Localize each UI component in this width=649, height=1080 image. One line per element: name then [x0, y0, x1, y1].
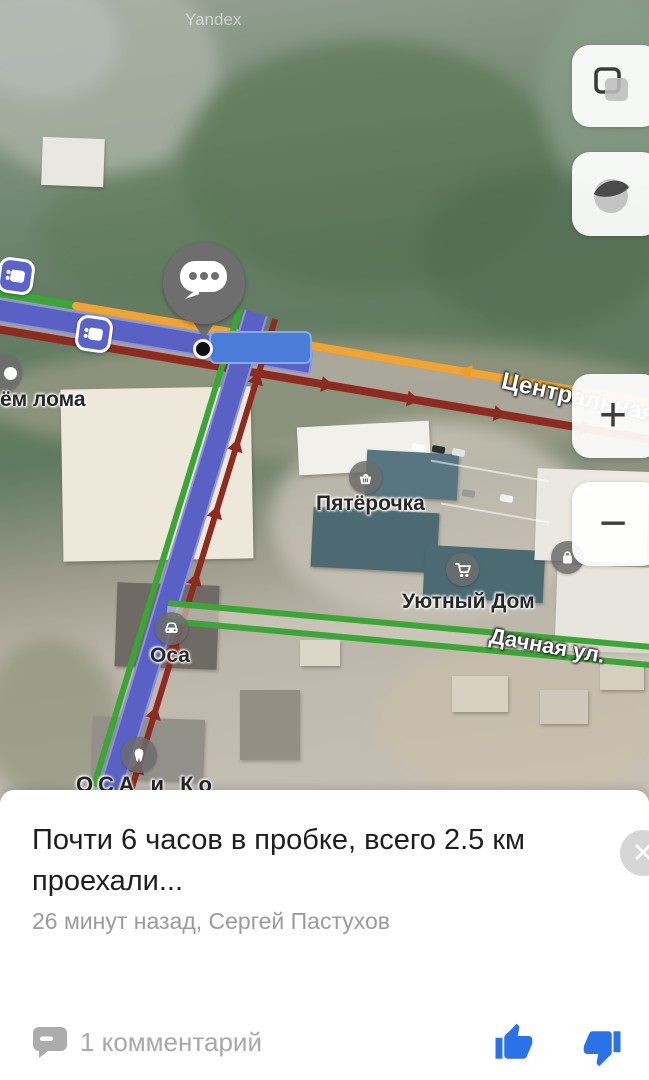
- poi-pyaterochka[interactable]: [349, 461, 382, 494]
- comments-link[interactable]: 1 комментарий: [32, 1026, 262, 1058]
- dot-icon: [4, 367, 17, 380]
- bus-icon: [80, 320, 107, 347]
- close-icon: ✕: [632, 838, 649, 869]
- comments-count-label: 1 комментарий: [80, 1027, 262, 1058]
- poi-label-osa[interactable]: Оса: [150, 644, 190, 668]
- bubble-dot: [211, 272, 219, 280]
- poi-label-pyaterochka[interactable]: Пятёрочка: [316, 492, 425, 516]
- layers-button[interactable]: [572, 45, 649, 127]
- layers-icon: [588, 63, 634, 109]
- building: [300, 640, 340, 666]
- traffic-arrow-right: [406, 391, 421, 409]
- traffic-arrow-left: [457, 363, 472, 381]
- car-icon: [161, 618, 182, 639]
- bus-stop-icon[interactable]: [74, 314, 115, 355]
- speech-bubble-icon: [180, 261, 227, 292]
- building: [311, 507, 440, 574]
- bus-icon: [2, 262, 29, 289]
- zoom-out-button[interactable]: −: [572, 482, 649, 566]
- app-screen: Центральная Дачная ул. ём лома Пятёрочка: [0, 0, 649, 1080]
- zoom-in-button[interactable]: +: [572, 374, 649, 458]
- thumbs-down-button[interactable]: [582, 1026, 624, 1068]
- building: [452, 676, 508, 712]
- panorama-button[interactable]: [572, 152, 649, 236]
- yandex-watermark: Yandex: [185, 10, 241, 30]
- marker-anchor-dot: [193, 339, 213, 359]
- poi-uyutny-dom[interactable]: [446, 553, 479, 586]
- bubble-dot: [200, 272, 208, 280]
- selected-road-segment[interactable]: [209, 331, 312, 364]
- poi-osa[interactable]: [155, 612, 188, 645]
- comment-bubble-icon: [32, 1026, 68, 1058]
- comment-meta: 26 минут назад, Сергей Пастухов: [32, 908, 390, 935]
- cart-icon: [452, 559, 473, 580]
- building: [240, 690, 300, 760]
- poi-dentist[interactable]: [121, 737, 157, 773]
- tooth-icon: [129, 745, 149, 765]
- plus-icon: +: [599, 392, 627, 440]
- poi-label-uyutny-dom[interactable]: Уютный Дом: [402, 590, 535, 614]
- comment-title: Почти 6 часов в пробке, всего 2.5 км про…: [32, 820, 584, 902]
- building: [540, 690, 588, 724]
- bus-stop-icon[interactable]: [0, 256, 36, 297]
- poi-label-priem-loma[interactable]: ём лома: [0, 388, 86, 412]
- building: [41, 137, 105, 187]
- minus-icon: −: [599, 500, 627, 548]
- traffic-arrow-right: [320, 376, 335, 394]
- close-button[interactable]: ✕: [620, 830, 649, 876]
- basket-icon: [355, 467, 376, 488]
- traffic-arrow-right: [493, 405, 508, 423]
- thumbs-up-button[interactable]: [492, 1022, 534, 1064]
- panorama-icon: [587, 170, 635, 218]
- bubble-dot: [189, 272, 197, 280]
- comment-panel: Почти 6 часов в пробке, всего 2.5 км про…: [0, 790, 649, 1080]
